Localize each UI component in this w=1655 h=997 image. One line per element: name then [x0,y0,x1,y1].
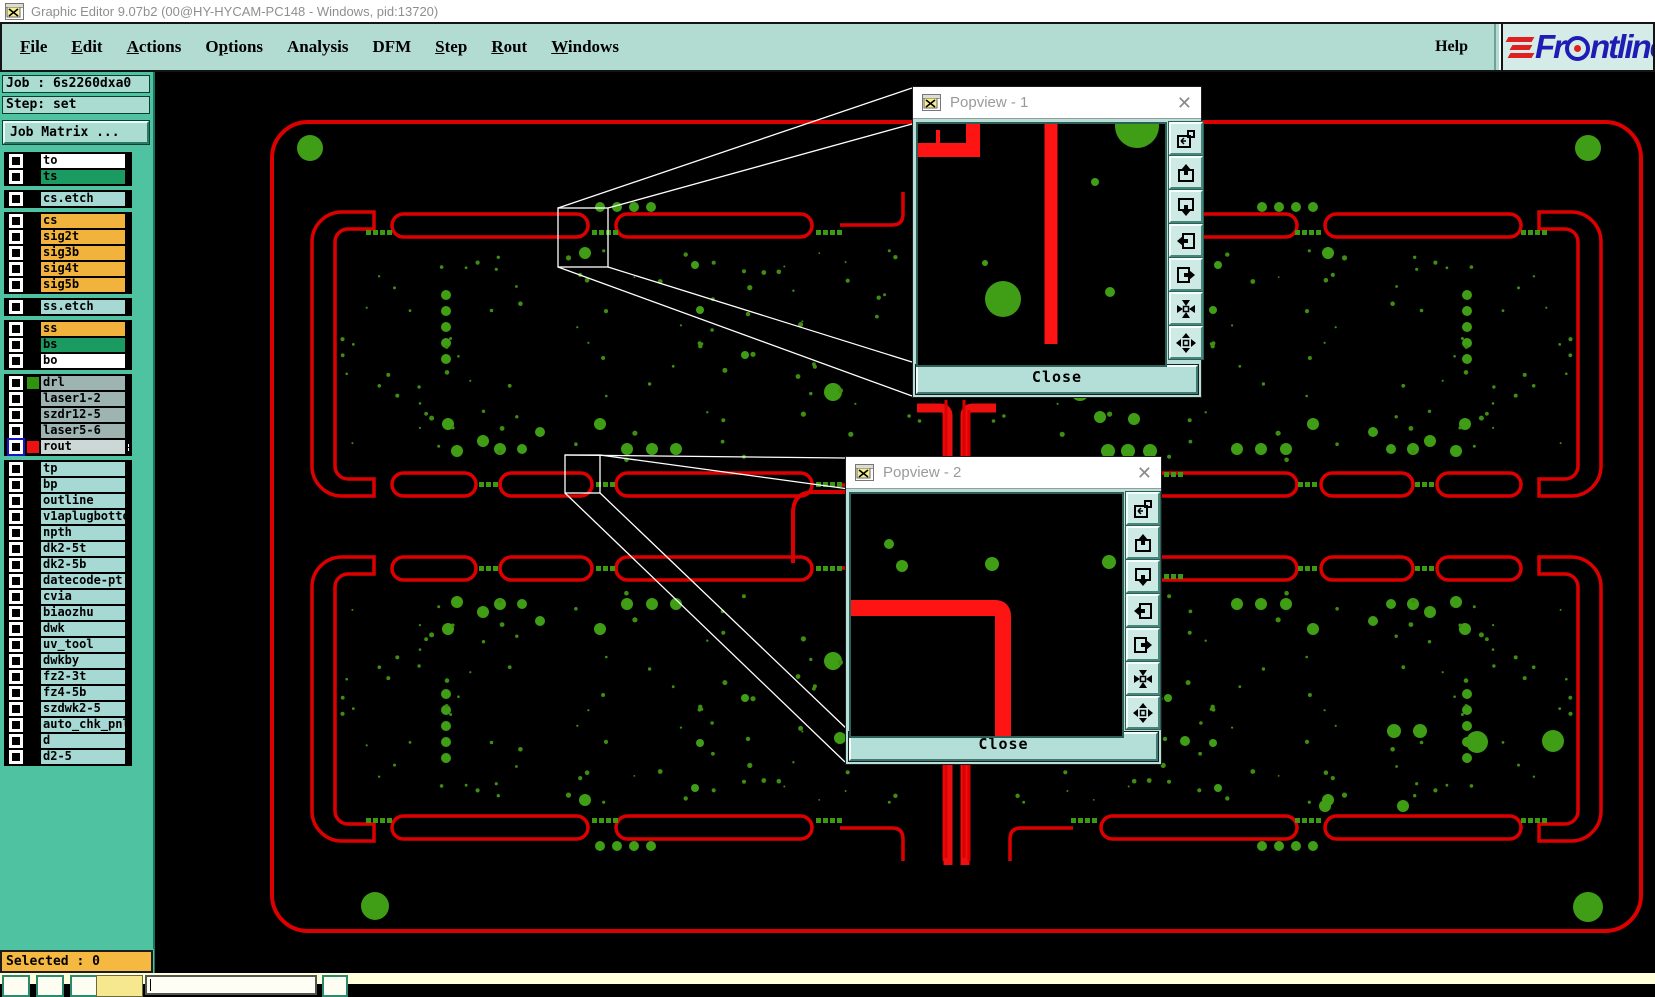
move-center-icon[interactable] [1126,696,1160,729]
layer-row-szdwk2-5: szdwk2-5 [5,701,131,717]
layer-group: cssig2tsig3bsig4tsig5b [4,212,132,294]
layer-name-uv_tool[interactable]: uv_tool [40,637,126,653]
layer-checkbox-outline[interactable] [9,494,23,508]
bottom-button-2[interactable] [36,975,64,997]
layer-name-dwkby[interactable]: dwkby [40,653,126,669]
job-label: Job : 6s2260dxa0 [2,75,150,93]
layer-chip-spacer [25,425,40,438]
layer-row-fz4-5b: fz4-5b [5,685,131,701]
layer-name-cs.etch[interactable]: cs.etch [40,191,126,207]
layer-row-cs.etch: cs.etch [5,191,131,207]
layer-row-sig2t: sig2t [5,229,131,245]
layer-chip-spacer [25,155,40,168]
layer-checkbox-ts[interactable] [9,170,23,184]
text-caret [150,979,151,991]
layer-row-laser5-6: laser5-6 [5,423,131,439]
layer-name-d[interactable]: d [40,733,126,749]
layer-name-cvia[interactable]: cvia [40,589,126,605]
pan-up-icon[interactable] [1169,156,1203,189]
layer-row-sig3b: sig3b [5,245,131,261]
layer-checkbox-sig5b[interactable] [9,278,23,292]
layer-row-fz2-3t: fz2-3t [5,669,131,685]
layer-chip-spacer [25,479,40,492]
logo-speed-lines-icon [1507,37,1533,58]
layer-name-ts[interactable]: ts [40,169,126,185]
layer-name-sig5b[interactable]: sig5b [40,277,126,293]
layer-row-sig4t: sig4t [5,261,131,277]
menu-item-rout[interactable]: Rout [479,37,539,57]
layer-checkbox-to[interactable] [9,154,23,168]
layer-chip-spacer [25,575,40,588]
layer-checkbox-fz4-5b[interactable] [9,686,23,700]
menu-item-step[interactable]: Step [423,37,479,57]
frontline-logo: Frntline [1501,24,1653,70]
layer-list: totscs.etchcssig2tsig3bsig4tsig5bss.etch… [4,152,132,770]
popview-2-title-bar[interactable]: Popview - 2 ✕ [846,457,1161,489]
layer-chip-spacer [25,409,40,422]
layer-name-fz2-3t[interactable]: fz2-3t [40,669,126,685]
layer-row-ss: ss [5,321,131,337]
layer-row-tp: tp [5,461,131,477]
detach-view-icon[interactable] [1126,492,1160,525]
layer-group: tpbpoutlinev1aplugbottonpthdk2-5tdk2-5bd… [4,460,132,766]
layer-group: ss.etch [4,298,132,316]
layer-name-fz4-5b[interactable]: fz4-5b [40,685,126,701]
menu-item-help[interactable]: Help [1409,24,1494,70]
zoom-fit-icon[interactable] [1169,292,1203,325]
layer-group: tots [4,152,132,186]
layer-checkbox-laser1-2[interactable] [9,392,23,406]
layer-name-szdr12-5[interactable]: szdr12-5 [40,407,126,423]
layer-chip-spacer [25,639,40,652]
layer-checkbox-drl[interactable] [9,376,23,390]
layer-name-sig2t[interactable]: sig2t [40,229,126,245]
layer-color-chip [25,377,40,390]
layer-checkbox-npth[interactable] [9,526,23,540]
close-x-icon[interactable]: ✕ [1137,464,1152,482]
layer-chip-spacer [25,527,40,540]
layer-name-biaozhu[interactable]: biaozhu [40,605,126,621]
layer-name-to[interactable]: to [40,153,126,169]
layer-chip-spacer [25,339,40,352]
popview-1-canvas[interactable] [916,122,1167,367]
menu-item-options[interactable]: Options [193,37,275,57]
layer-name-laser1-2[interactable]: laser1-2 [40,391,126,407]
step-label: Step: set [2,96,150,114]
layer-chip-spacer [25,543,40,556]
layer-chip-spacer [25,301,40,314]
help-label: Help [1435,38,1468,56]
layer-checkbox-laser5-6[interactable] [9,424,23,438]
layer-chip-spacer [25,559,40,572]
layer-row-drl: drl [5,375,131,391]
layer-name-drl[interactable]: drl [40,375,126,391]
menu-item-analysis[interactable]: Analysis [275,37,360,57]
layer-sidebar: Job : 6s2260dxa0 Step: set Job Matrix ..… [0,72,155,973]
layer-chip-spacer [25,193,40,206]
selected-status: Selected : 0 [0,950,153,973]
layer-row-dwkby: dwkby [5,653,131,669]
popview-1-title-bar[interactable]: Popview - 1 ✕ [913,87,1201,119]
layer-chip-spacer [25,703,40,716]
layer-chip-spacer [25,247,40,260]
layer-row-ss.etch: ss.etch [5,299,131,315]
layer-row-d: d [5,733,131,749]
layer-row-outline: outline [5,493,131,509]
layer-name-dk2-5b[interactable]: dk2-5b [40,557,126,573]
layer-checkbox-tp[interactable] [9,462,23,476]
layer-checkbox-biaozhu[interactable] [9,606,23,620]
window-title: Graphic Editor 9.07b2 (00@HY-HYCAM-PC148… [31,4,438,19]
menu-bar: FileEditActionsOptionsAnalysisDFMStepRou… [0,22,1655,72]
layer-name-bo[interactable]: bo [40,353,126,369]
layer-name-bp[interactable]: bp [40,477,126,493]
layer-checkbox-datecode-pt[interactable] [9,574,23,588]
bottom-toolbar [0,973,1655,984]
layer-checkbox-sig2t[interactable] [9,230,23,244]
layer-checkbox-szdr12-5[interactable] [9,408,23,422]
layer-row-bp: bp [5,477,131,493]
popview-window-icon [855,464,874,481]
layer-checkbox-ss[interactable] [9,322,23,336]
menu-item-actions[interactable]: Actions [115,37,194,57]
layer-name-cs[interactable]: cs [40,213,126,229]
logo-target-o-icon [1565,36,1590,61]
layer-checkbox-dk2-5b[interactable] [9,558,23,572]
pan-right-icon[interactable] [1169,258,1203,291]
layer-group: cs.etch [4,190,132,208]
layer-name-dwk[interactable]: dwk [40,621,126,637]
layer-chip-spacer [25,719,40,732]
menu-item-edit[interactable]: Edit [59,37,114,57]
layer-checkbox-dk2-5t[interactable] [9,542,23,556]
layer-row-ts: ts [5,169,131,185]
popview-window-icon [922,94,941,111]
layer-checkbox-dwkby[interactable] [9,654,23,668]
pan-down-icon[interactable] [1169,190,1203,223]
layer-checkbox-dwk[interactable] [9,622,23,636]
layer-row-cvia: cvia [5,589,131,605]
layer-chip-spacer [25,655,40,668]
layer-row-biaozhu: biaozhu [5,605,131,621]
layer-chip-spacer [25,495,40,508]
layer-name-outline[interactable]: outline [40,493,126,509]
layer-row-sig5b: sig5b [5,277,131,293]
popview-window-1: Popview - 1 ✕ Close [912,86,1202,398]
layer-chip-spacer [25,623,40,636]
pan-left-icon[interactable] [1169,224,1203,257]
layer-name-tp[interactable]: tp [40,461,126,477]
layer-name-bs[interactable]: bs [40,337,126,353]
layer-name-npth[interactable]: npth [40,525,126,541]
layer-row-datecode-pt: datecode-pt [5,573,131,589]
layer-checkbox-sig4t[interactable] [9,262,23,276]
bottom-mode-box[interactable] [96,975,143,997]
layer-checkbox-ss.etch[interactable] [9,300,23,314]
layer-row-uv_tool: uv_tool [5,637,131,653]
layer-row-dk2-5b: dk2-5b [5,557,131,573]
popview-2-toolbar [1126,492,1162,729]
close-x-icon[interactable]: ✕ [1177,94,1192,112]
layer-row-d2-5: d2-5 [5,749,131,765]
layer-checkbox-szdwk2-5[interactable] [9,702,23,716]
layer-chip-spacer [25,591,40,604]
layer-chip-spacer [25,687,40,700]
layer-checkbox-bo[interactable] [9,354,23,368]
bottom-button-3[interactable] [70,975,98,997]
popview-1-title: Popview - 1 [950,94,1168,111]
layer-chip-spacer [25,323,40,336]
bottom-button-1[interactable] [2,975,30,997]
popview-1-toolbar [1169,122,1205,362]
layer-row-dk2-5t: dk2-5t [5,541,131,557]
layer-checkbox-cvia[interactable] [9,590,23,604]
layer-color-chip [25,441,40,454]
layer-row-npth: npth [5,525,131,541]
layer-name-datecode-pt[interactable]: datecode-pt [40,573,126,589]
layer-name-sig3b[interactable]: sig3b [40,245,126,261]
layer-row-auto_chk_pnl: auto_chk_pnl [5,717,131,733]
layer-row-to: to [5,153,131,169]
pan-right-icon[interactable] [1126,628,1160,661]
layer-chip-spacer [25,671,40,684]
layer-group: ssbsbo [4,320,132,370]
layer-row-laser1-2: laser1-2 [5,391,131,407]
center-mouse-bites [1164,472,1183,579]
layer-checkbox-uv_tool[interactable] [9,638,23,652]
layer-chip-spacer [25,735,40,748]
layer-row-szdr12-5: szdr12-5 [5,407,131,423]
layer-chip-spacer [25,171,40,184]
layer-name-auto_chk_pnl[interactable]: auto_chk_pnl [40,717,126,733]
layer-chip-spacer [25,511,40,524]
popview-1-close-button[interactable]: Close [916,365,1198,394]
layer-chip-spacer [25,263,40,276]
layer-checkbox-d2-5[interactable] [9,750,23,764]
popview-window-2: Popview - 2 ✕ Close [845,456,1162,765]
menu-separator [1494,24,1501,70]
popview-2-title: Popview - 2 [883,464,1128,481]
layer-name-ss[interactable]: ss [40,321,126,337]
layer-checkbox-cs[interactable] [9,214,23,228]
layer-grid-icon[interactable] [127,443,131,452]
pan-up-icon[interactable] [1126,526,1160,559]
layer-row-rout: rout [5,439,131,455]
layer-chip-spacer [25,279,40,292]
layer-checkbox-rout[interactable] [9,440,23,454]
job-matrix-button[interactable]: Job Matrix ... [3,121,149,144]
menu-item-file[interactable]: File [8,37,59,57]
layer-checkbox-fz2-3t[interactable] [9,670,23,684]
menu-item-windows[interactable]: Windows [539,37,631,57]
layer-chip-spacer [25,607,40,620]
layer-name-d2-5[interactable]: d2-5 [40,749,126,765]
menu-items: FileEditActionsOptionsAnalysisDFMStepRou… [2,24,1409,70]
detach-view-icon[interactable] [1169,122,1203,155]
layer-chip-spacer [25,393,40,406]
layer-row-cs: cs [5,213,131,229]
layer-name-laser5-6[interactable]: laser5-6 [40,423,126,439]
layer-row-bo: bo [5,353,131,369]
layer-chip-spacer [25,751,40,764]
layer-checkbox-v1aplugbotto[interactable] [9,510,23,524]
layer-checkbox-bs[interactable] [9,338,23,352]
layer-checkbox-sig3b[interactable] [9,246,23,260]
pan-left-icon[interactable] [1126,594,1160,627]
os-title-bar: Graphic Editor 9.07b2 (00@HY-HYCAM-PC148… [0,0,1655,22]
layer-name-dk2-5t[interactable]: dk2-5t [40,541,126,557]
command-input[interactable] [145,975,317,995]
menu-item-dfm[interactable]: DFM [360,37,423,57]
layer-row-bs: bs [5,337,131,353]
layer-checkbox-bp[interactable] [9,478,23,492]
layer-chip-spacer [25,463,40,476]
layer-row-dwk: dwk [5,621,131,637]
layer-group: drllaser1-2szdr12-5laser5-6rout [4,374,132,456]
layer-name-szdwk2-5[interactable]: szdwk2-5 [40,701,126,717]
layer-checkbox-cs.etch[interactable] [9,192,23,206]
move-center-icon[interactable] [1169,326,1203,359]
logo-text: Frntline [1535,28,1653,66]
layer-row-v1aplugbotto: v1aplugbotto [5,509,131,525]
layer-name-rout[interactable]: rout [40,439,126,455]
layer-chip-spacer [25,231,40,244]
bottom-button-4[interactable] [322,975,348,997]
layer-checkbox-auto_chk_pnl[interactable] [9,718,23,732]
layer-name-ss.etch[interactable]: ss.etch [40,299,126,315]
layer-name-v1aplugbotto[interactable]: v1aplugbotto [40,509,126,525]
layer-chip-spacer [25,355,40,368]
app-window-icon [5,3,24,20]
pan-down-icon[interactable] [1126,560,1160,593]
popview-2-canvas[interactable] [849,492,1124,738]
zoom-fit-icon[interactable] [1126,662,1160,695]
layer-name-sig4t[interactable]: sig4t [40,261,126,277]
layer-checkbox-d[interactable] [9,734,23,748]
layer-chip-spacer [25,215,40,228]
